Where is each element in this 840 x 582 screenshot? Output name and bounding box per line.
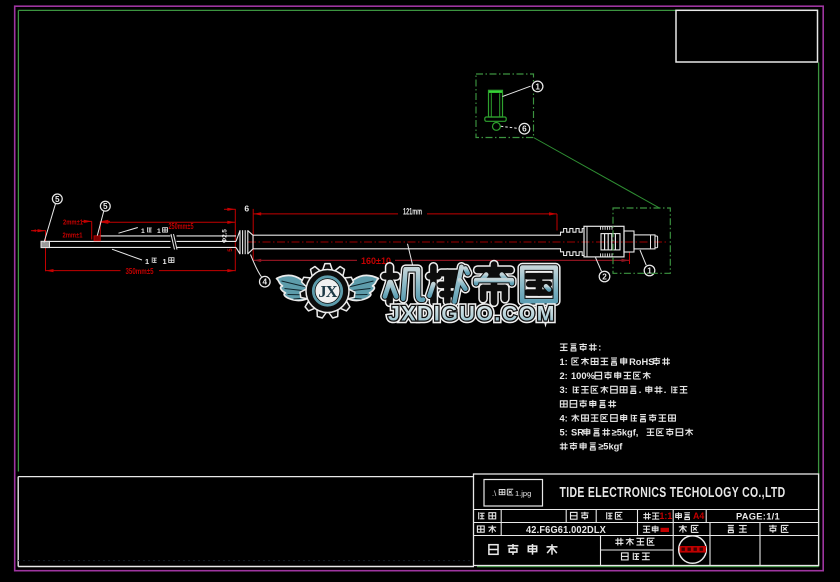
svg-text:5: 5 <box>55 195 60 204</box>
svg-text:350mm±5: 350mm±5 <box>126 266 154 276</box>
svg-text:PAGE:1/1: PAGE:1/1 <box>736 511 780 521</box>
svg-text:RoHS: RoHS <box>629 357 654 367</box>
svg-text:SR: SR <box>571 428 584 438</box>
svg-text:100%: 100% <box>571 371 596 381</box>
svg-text:5:: 5: <box>560 428 568 438</box>
svg-text:1: 1 <box>141 228 145 235</box>
svg-text:4:: 4: <box>560 413 568 423</box>
svg-text:3:: 3: <box>560 385 568 395</box>
svg-text:≥5kgf,: ≥5kgf, <box>612 428 639 438</box>
svg-text:JXDIGUO.COM: JXDIGUO.COM <box>388 302 556 326</box>
svg-text:1: 1 <box>535 82 540 91</box>
svg-text:6: 6 <box>244 204 249 214</box>
svg-text:6: 6 <box>522 125 527 134</box>
svg-text:42.F6G61.002DLX: 42.F6G61.002DLX <box>526 524 606 536</box>
svg-text::: : <box>598 343 601 353</box>
svg-text:JX: JX <box>318 282 337 301</box>
svg-text:250mm±5: 250mm±5 <box>169 221 194 231</box>
svg-text:2mm±1: 2mm±1 <box>63 218 83 227</box>
svg-text:5: 5 <box>227 248 234 252</box>
svg-text:2mm±1: 2mm±1 <box>63 230 83 239</box>
svg-text:2:: 2: <box>560 371 568 381</box>
svg-text:5: 5 <box>103 202 108 211</box>
svg-text:A4: A4 <box>693 511 704 521</box>
svg-text:1.jpg: 1.jpg <box>515 489 531 498</box>
svg-text:1: 1 <box>647 267 652 276</box>
svg-text:.: . <box>639 385 642 395</box>
svg-text:1: 1 <box>157 228 161 235</box>
svg-text:1:1: 1:1 <box>660 511 673 521</box>
svg-text:121mm: 121mm <box>403 206 422 217</box>
svg-text:≥5kgf: ≥5kgf <box>598 442 623 452</box>
svg-text:1:: 1: <box>560 357 568 367</box>
svg-text:.: . <box>664 385 667 395</box>
svg-text:4: 4 <box>263 278 268 287</box>
svg-text:1: 1 <box>145 257 149 266</box>
svg-text:2: 2 <box>602 273 607 282</box>
svg-text:1: 1 <box>163 257 167 266</box>
svg-text:TIDE ELECTRONICS TECHOLOGY CO.: TIDE ELECTRONICS TECHOLOGY CO.,LTD <box>560 485 786 501</box>
